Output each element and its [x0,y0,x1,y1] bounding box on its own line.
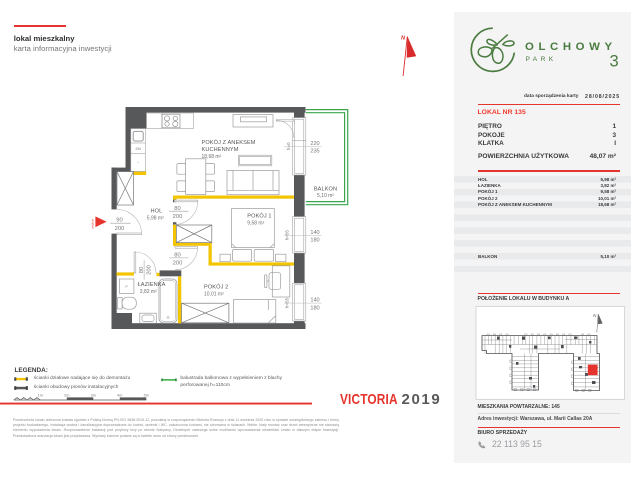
svg-text:180: 180 [310,238,319,244]
svg-text:220: 220 [310,141,319,147]
svg-text:KUCHENNYM: KUCHENNYM [202,147,239,153]
svg-text:ZM: ZM [135,147,140,151]
svg-text:5,98 m²: 5,98 m² [147,216,164,222]
svg-text:5,10 m²: 5,10 m² [317,193,334,199]
svg-text:235: 235 [310,149,319,155]
svg-text:9,58 m²: 9,58 m² [247,220,264,226]
svg-text:h=0: h=0 [286,142,291,150]
svg-text:POKÓJ 2: POKÓJ 2 [204,283,228,290]
svg-text:140: 140 [310,298,319,304]
svg-text:BALKON: BALKON [314,187,337,193]
svg-text:18,68 m²: 18,68 m² [202,154,222,160]
svg-text:PARK: PARK [526,56,557,63]
svg-text:1m: 1m [38,394,43,398]
svg-text:HOL: HOL [151,208,163,214]
svg-text:P: P [125,285,128,289]
svg-text:h=55: h=55 [285,297,290,308]
svg-text:POKÓJ 1: POKÓJ 1 [247,212,271,219]
svg-text:140: 140 [310,230,319,236]
svg-text:3: 3 [610,53,619,71]
svg-text:wejście: wejście [91,219,95,229]
svg-text:ŁAZIENKA: ŁAZIENKA [138,282,166,288]
svg-text:200: 200 [115,226,125,232]
svg-text:90: 90 [116,218,122,224]
svg-text:5m: 5m [144,394,149,398]
svg-text:200: 200 [147,265,153,275]
svg-text:4m: 4m [117,394,122,398]
svg-text:10,01 m²: 10,01 m² [204,291,224,297]
svg-text:3,82 m²: 3,82 m² [140,289,157,295]
svg-text:N: N [401,36,406,42]
svg-text:POKÓJ Z ANEKSEM: POKÓJ Z ANEKSEM [202,139,256,146]
svg-text:3m: 3m [91,394,96,398]
svg-text:OLCHOWY: OLCHOWY [525,41,617,53]
svg-text:180: 180 [310,305,319,311]
svg-text:200: 200 [173,261,183,267]
svg-text:h=55: h=55 [285,230,290,241]
svg-text:2m: 2m [64,394,69,398]
svg-text:200: 200 [173,214,183,220]
svg-text:+: + [137,161,139,165]
